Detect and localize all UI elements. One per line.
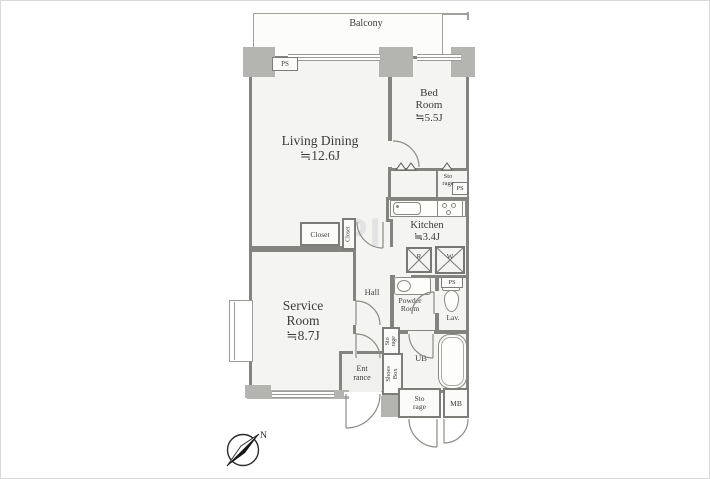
living-dining-label: Living Dining≒12.6J (250, 133, 390, 163)
compass-icon: N (213, 425, 279, 479)
balcony-divider-tick (467, 12, 469, 20)
closet-box-vertical: Closet (342, 218, 356, 250)
storage-bedroom-label: Storage (437, 174, 459, 188)
kitchen-sink (393, 202, 421, 215)
opening-lavatory-door (434, 291, 439, 313)
floor-plan: Balcony PI PS (0, 0, 710, 479)
opening-hall-kitchen (387, 247, 395, 275)
compass-circle (228, 435, 259, 466)
compass-needle-white (227, 434, 259, 466)
stove-burner-1 (442, 203, 447, 208)
kitchen-label: Kitchen≒3.4J (389, 220, 465, 244)
entrance-label: Entrance (341, 365, 383, 383)
window-living-balcony (288, 54, 380, 61)
window-service-bottom (272, 391, 334, 398)
window-bedroom-balcony (417, 54, 461, 61)
refrigerator-label: R (413, 254, 425, 262)
washer-label: W (443, 254, 457, 262)
storage-hall-box: Storage (382, 327, 400, 355)
opening-unit-bath-door (408, 331, 434, 335)
ps-box-kitchen: PS (441, 277, 463, 288)
balcony-rail-extension (443, 13, 469, 15)
pillar-top-left (243, 47, 275, 77)
door-arc-storage-bottom (409, 419, 437, 447)
pillar-top-right (451, 47, 475, 77)
door-arc-meter-box (444, 419, 468, 443)
stove-burner-3 (446, 210, 451, 215)
door-arc-entrance (346, 394, 380, 428)
bay-window-inner-line (234, 302, 235, 360)
balcony-label: Balcony (271, 18, 461, 29)
hall-label: Hall (353, 288, 391, 298)
powder-room-label: PowderRoom (389, 297, 431, 314)
service-room-label: ServiceRoom≒8.7J (251, 298, 355, 343)
bathtub-inner-line (441, 337, 464, 386)
storage-bottom-box: Storage (398, 388, 441, 418)
ps-box-top-left: PS (272, 57, 298, 71)
lavatory-label: Lav. (439, 314, 467, 322)
bay-window (229, 300, 253, 362)
north-label: N (260, 431, 267, 441)
pillar-top-middle (379, 47, 413, 77)
kitchen-faucet-dot (396, 205, 399, 208)
unit-bath-label: UB (406, 354, 436, 364)
bedroom-label: BedRoom≒5.5J (393, 87, 465, 124)
opening-entrance-door (344, 392, 382, 396)
compass-needle-black (227, 434, 259, 466)
meter-box: MB (443, 388, 469, 418)
closet-box: Closet (300, 222, 340, 246)
stove-burner-2 (451, 203, 456, 208)
washbasin-bowl (397, 280, 411, 292)
